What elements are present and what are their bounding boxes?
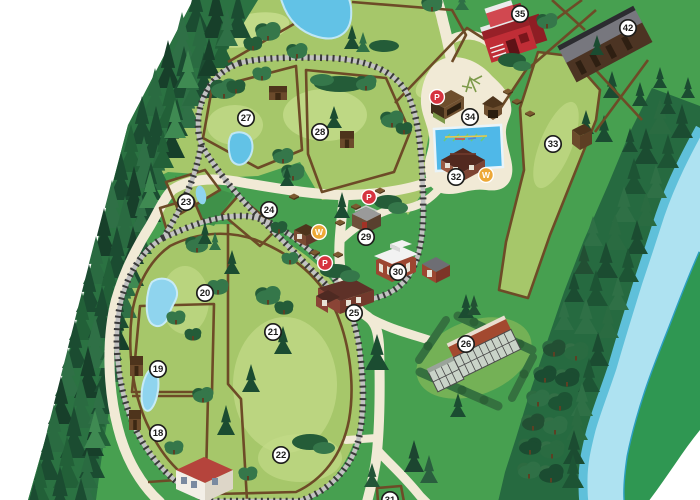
- svg-text:P: P: [366, 192, 372, 202]
- svg-text:28: 28: [315, 127, 326, 138]
- svg-text:29: 29: [361, 232, 372, 243]
- svg-text:22: 22: [276, 450, 287, 461]
- svg-text:30: 30: [393, 267, 404, 278]
- svg-text:34: 34: [465, 112, 476, 123]
- svg-text:42: 42: [623, 23, 634, 34]
- svg-text:W: W: [482, 170, 491, 180]
- svg-text:W: W: [315, 227, 324, 237]
- svg-text:35: 35: [515, 9, 526, 20]
- svg-text:P: P: [434, 92, 440, 102]
- svg-text:31: 31: [385, 495, 396, 500]
- svg-text:P: P: [322, 258, 328, 268]
- svg-text:26: 26: [461, 339, 472, 350]
- svg-text:32: 32: [451, 172, 462, 183]
- svg-text:27: 27: [241, 113, 252, 124]
- svg-text:21: 21: [268, 327, 279, 338]
- svg-text:25: 25: [349, 308, 360, 319]
- svg-text:19: 19: [153, 364, 164, 375]
- svg-text:24: 24: [264, 205, 275, 216]
- svg-text:20: 20: [200, 288, 211, 299]
- svg-text:23: 23: [181, 197, 192, 208]
- svg-text:33: 33: [548, 139, 559, 150]
- svg-text:18: 18: [153, 428, 164, 439]
